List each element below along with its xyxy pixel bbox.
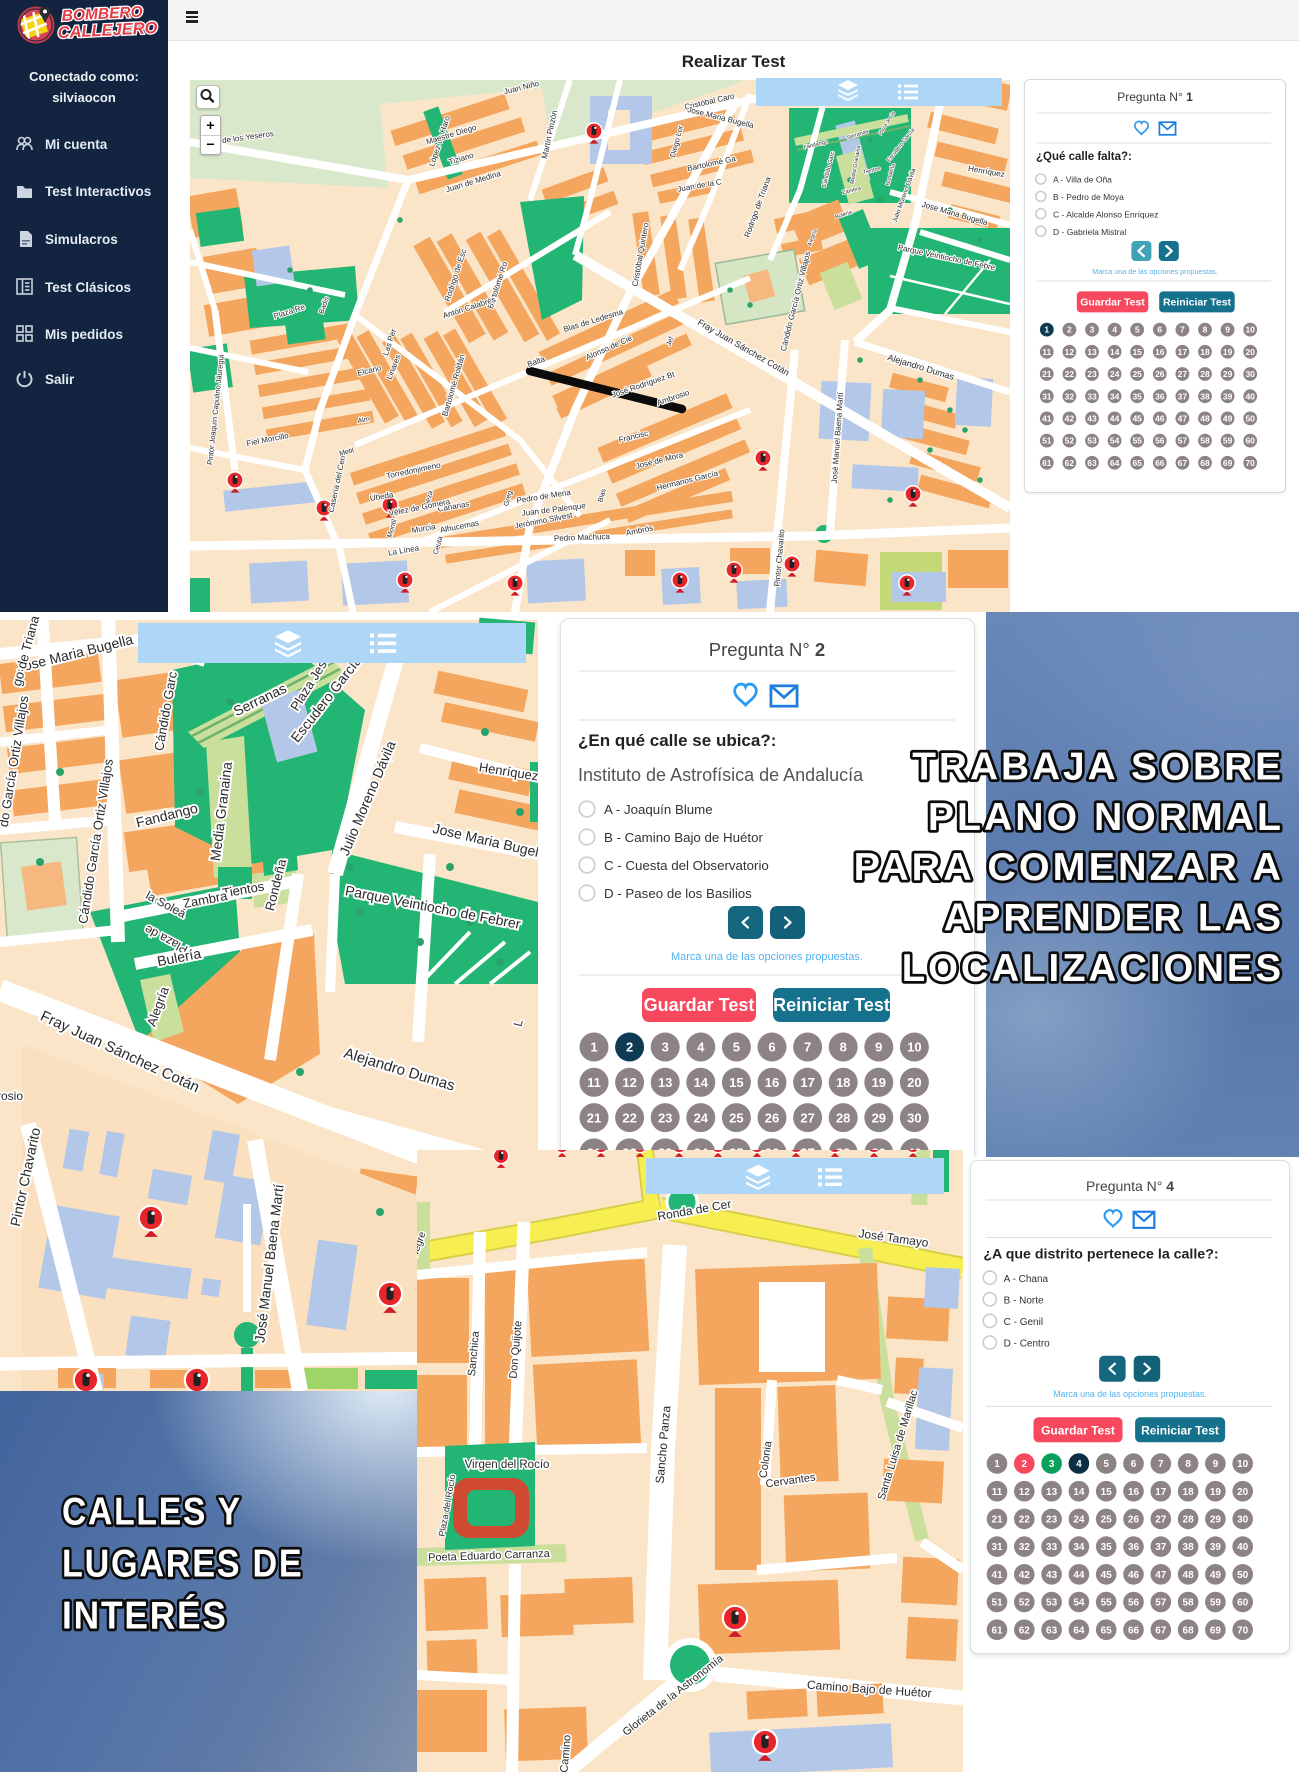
svg-text:LOCALIZACIONES: LOCALIZACIONES (902, 947, 1284, 990)
svg-text:LUGARES DE: LUGARES DE (62, 1541, 303, 1585)
svg-text:PARA COMENZAR A: PARA COMENZAR A (854, 845, 1284, 889)
svg-text:CALLES Y: CALLES Y (62, 1489, 242, 1533)
svg-text:TRABAJA SOBRE: TRABAJA SOBRE (912, 746, 1284, 789)
svg-text:INTERÉS: INTERÉS (62, 1593, 228, 1637)
svg-text:PLANO NORMAL: PLANO NORMAL (928, 796, 1284, 839)
svg-text:APRENDER LAS: APRENDER LAS (944, 896, 1284, 939)
